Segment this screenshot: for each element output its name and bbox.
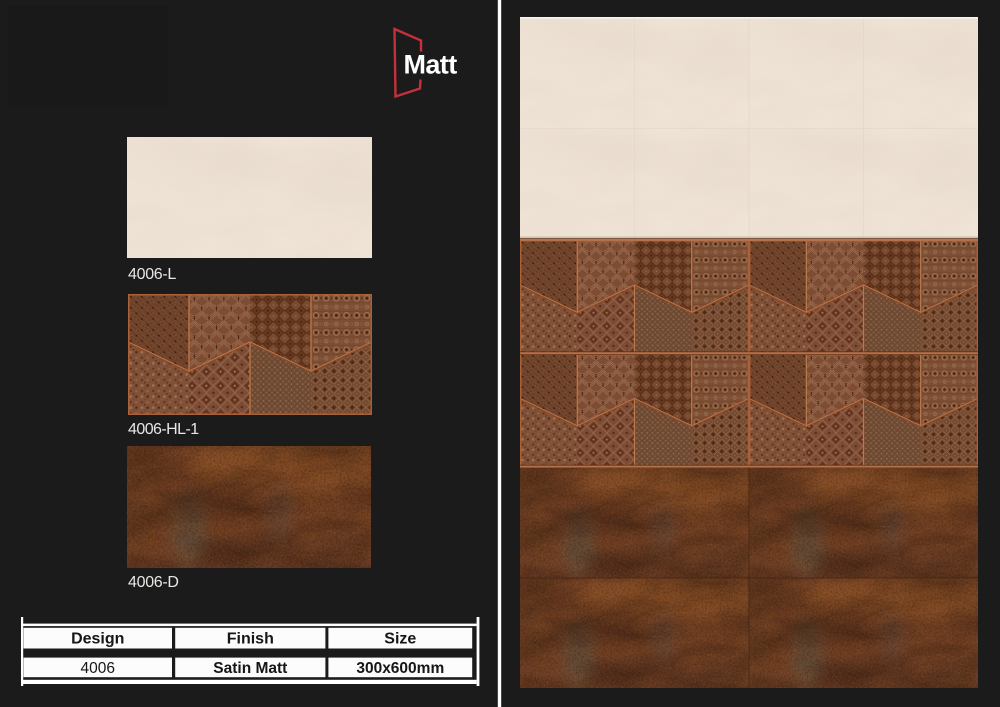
svg-text:Size: Size: [384, 630, 416, 647]
svg-text:4006-HL-1: 4006-HL-1: [128, 421, 199, 438]
svg-text:4006-L: 4006-L: [128, 266, 176, 283]
svg-text:Finish: Finish: [227, 630, 274, 647]
svg-text:4006-D: 4006-D: [128, 574, 179, 591]
svg-text:Satin Matt: Satin Matt: [213, 660, 287, 677]
svg-text:Design: Design: [71, 630, 124, 647]
svg-text:Matt: Matt: [404, 50, 458, 80]
svg-text:300x600mm: 300x600mm: [356, 660, 444, 677]
svg-text:4006: 4006: [81, 660, 115, 677]
